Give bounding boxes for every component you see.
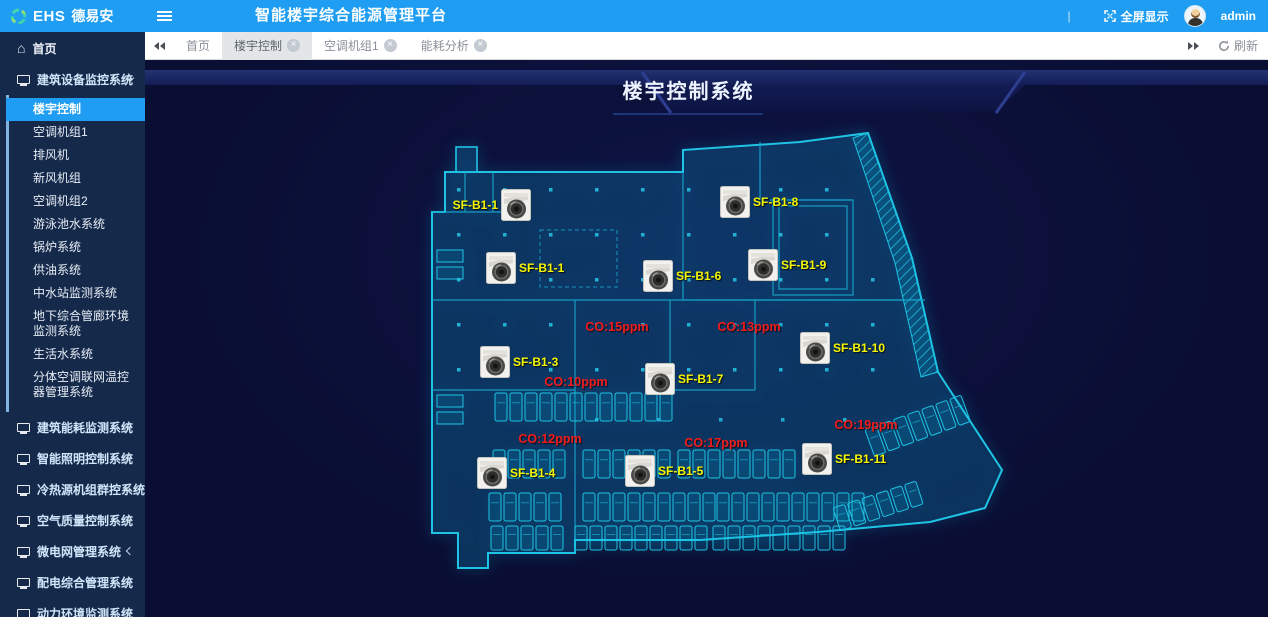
top-header: EHS 德易安 智能楼宇综合能源管理平台 | 全屏显示 admin [0,0,1268,32]
device-label: SF-B1-1 [453,198,498,212]
sidebar-group-动力环境监测系统[interactable]: 动力环境监测系统 [0,598,145,617]
refresh-label: 刷新 [1234,37,1258,54]
fan-unit-icon [800,332,830,364]
tab-label: 能耗分析 [421,37,469,54]
brand-text: EHS [33,8,65,25]
sidebar-item-新风机组[interactable]: 新风机组 [9,167,145,190]
ring-segments-icon [10,8,27,25]
device-label: SF-B1-3 [513,355,558,369]
sidebar-home-label: 首页 [32,40,56,57]
sidebar-submenu: 楼宇控制空调机组1排风机新风机组空调机组2游泳池水系统锅炉系统供油系统中水站监测… [6,95,145,412]
tab-label: 首页 [186,37,210,54]
tab-楼宇控制[interactable]: 楼宇控制 [222,32,312,60]
close-icon[interactable] [474,39,487,52]
fan-unit-icon [720,186,750,218]
tab-label: 空调机组1 [324,37,379,54]
tab-bar: 首页楼宇控制空调机组1能耗分析 刷新 [145,32,1268,60]
refresh-button[interactable]: 刷新 [1218,37,1258,54]
sidebar-group-配电综合管理系统[interactable]: 配电综合管理系统 [0,567,145,598]
sidebar-group-label: 配电综合管理系统 [37,574,133,591]
device-marker-SF-B1-6[interactable]: SF-B1-6 [643,260,673,292]
logo: EHS 德易安 [0,0,145,32]
close-icon[interactable] [384,39,397,52]
device-marker-SF-B1-10[interactable]: SF-B1-10 [800,332,830,364]
device-marker-SF-B1-7[interactable]: SF-B1-7 [645,363,675,395]
page-title: 楼宇控制系统 [497,76,880,108]
device-label: SF-B1-5 [658,464,703,478]
sidebar-item-供油系统[interactable]: 供油系统 [9,259,145,282]
home-icon: ⌂ [17,42,25,54]
device-marker-SF-B1-4[interactable]: SF-B1-4 [477,457,507,489]
sidebar-item-分体空调联网温控器管理系统[interactable]: 分体空调联网温控器管理系统 [9,366,145,404]
username: admin [1221,9,1256,23]
sidebar-group-building-devices[interactable]: 建筑设备监控系统 [0,64,145,95]
sidebar-group-label: 建筑能耗监测系统 [37,419,133,436]
brand-cn-text: 德易安 [71,6,113,26]
hamburger-icon[interactable] [157,15,172,17]
device-marker-SF-B1-1[interactable]: SF-B1-1 [486,252,516,284]
fan-unit-icon [625,455,655,487]
fan-unit-icon [501,189,531,221]
double-left-arrows-icon[interactable] [145,42,174,50]
tabs: 首页楼宇控制空调机组1能耗分析 [174,32,1179,60]
co-reading: CO:10ppm [544,375,607,389]
device-label: SF-B1-11 [835,452,886,466]
monitor-icon [17,454,30,463]
sidebar-item-生活水系统[interactable]: 生活水系统 [9,343,145,366]
fan-unit-icon [645,363,675,395]
app-window: EHS 德易安 智能楼宇综合能源管理平台 | 全屏显示 admin ⌂ 首页 [0,0,1268,617]
sidebar-group-label: 智能照明控制系统 [37,450,133,467]
co-reading: CO:15ppm [585,320,648,334]
monitor-icon [17,485,30,494]
header-divider: | [1068,9,1071,23]
fan-unit-icon [643,260,673,292]
sidebar-item-游泳池水系统[interactable]: 游泳池水系统 [9,213,145,236]
sidebar-group-label: 空气质量控制系统 [37,512,133,529]
sidebar: ⌂ 首页 建筑设备监控系统 楼宇控制空调机组1排风机新风机组空调机组2游泳池水系… [0,32,145,617]
tab-首页[interactable]: 首页 [174,32,222,60]
floorplan: SF-B1-1 SF-B1-8 SF-B1-1 SF-B1-6 SF-B1-9 … [425,130,1025,590]
fan-unit-icon [748,249,778,281]
sidebar-item-home[interactable]: ⌂ 首页 [0,32,145,64]
sidebar-item-空调机组1[interactable]: 空调机组1 [9,121,145,144]
co-reading: CO:19ppm [834,418,897,432]
monitor-icon [17,423,30,432]
fullscreen-label: 全屏显示 [1121,8,1169,25]
refresh-icon [1218,40,1230,52]
sidebar-group-冷热源机组群控系统[interactable]: 冷热源机组群控系统 [0,474,145,505]
sidebar-item-地下综合管廊环境监测系统[interactable]: 地下综合管廊环境监测系统 [9,305,145,343]
device-marker-SF-B1-1[interactable]: SF-B1-1 [501,189,531,221]
double-right-arrows-icon[interactable] [1179,42,1208,50]
expand-icon [1104,10,1116,22]
device-marker-SF-B1-3[interactable]: SF-B1-3 [480,346,510,378]
device-marker-SF-B1-9[interactable]: SF-B1-9 [748,249,778,281]
device-marker-SF-B1-11[interactable]: SF-B1-11 [802,443,832,475]
fan-unit-icon [802,443,832,475]
monitor-icon [17,516,30,525]
fan-unit-icon [480,346,510,378]
tab-能耗分析[interactable]: 能耗分析 [409,32,499,60]
sidebar-group-建筑能耗监测系统[interactable]: 建筑能耗监测系统 [0,412,145,443]
header-right: | 全屏显示 admin [1068,0,1268,32]
sidebar-item-排风机[interactable]: 排风机 [9,144,145,167]
sidebar-item-空调机组2[interactable]: 空调机组2 [9,190,145,213]
sidebar-collapsed-groups: 建筑能耗监测系统智能照明控制系统冷热源机组群控系统空气质量控制系统微电网管理系统… [0,412,145,617]
sidebar-item-锅炉系统[interactable]: 锅炉系统 [9,236,145,259]
device-label: SF-B1-6 [676,269,721,283]
device-label: SF-B1-7 [678,372,723,386]
sidebar-group-label: 微电网管理系统 [37,543,121,560]
avatar[interactable] [1184,5,1206,27]
fan-unit-icon [486,252,516,284]
fullscreen-button[interactable]: 全屏显示 [1104,8,1169,25]
device-label: SF-B1-9 [781,258,826,272]
tab-label: 楼宇控制 [234,37,282,54]
main-content: 楼宇控制系统 [145,60,1268,617]
app-title: 智能楼宇综合能源管理平台 [255,0,447,32]
tab-空调机组1[interactable]: 空调机组1 [312,32,409,60]
co-reading: CO:13ppm [717,320,780,334]
device-label: SF-B1-8 [753,195,798,209]
device-label: SF-B1-10 [833,341,885,355]
device-label: SF-B1-1 [519,261,564,275]
sidebar-group-label: 动力环境监测系统 [37,605,133,617]
device-label: SF-B1-4 [510,466,555,480]
sidebar-item-楼宇控制[interactable]: 楼宇控制 [6,98,145,121]
monitor-icon [17,578,30,587]
monitor-icon [17,609,30,617]
tab-bar-right: 刷新 [1179,37,1268,54]
device-marker-SF-B1-8[interactable]: SF-B1-8 [720,186,750,218]
chevron-left-icon [126,547,134,555]
close-icon[interactable] [287,39,300,52]
sidebar-group-label: 建筑设备监控系统 [37,71,133,88]
sidebar-group-微电网管理系统[interactable]: 微电网管理系统 [0,536,145,567]
sidebar-item-中水站监测系统[interactable]: 中水站监测系统 [9,282,145,305]
co-reading: CO:17ppm [684,436,747,450]
page-banner: 楼宇控制系统 [145,64,1268,124]
co-reading: CO:12ppm [518,432,581,446]
sidebar-group-智能照明控制系统[interactable]: 智能照明控制系统 [0,443,145,474]
device-marker-SF-B1-5[interactable]: SF-B1-5 [625,455,655,487]
sidebar-group-空气质量控制系统[interactable]: 空气质量控制系统 [0,505,145,536]
monitor-icon [17,547,30,556]
monitor-icon [17,75,30,84]
fan-unit-icon [477,457,507,489]
